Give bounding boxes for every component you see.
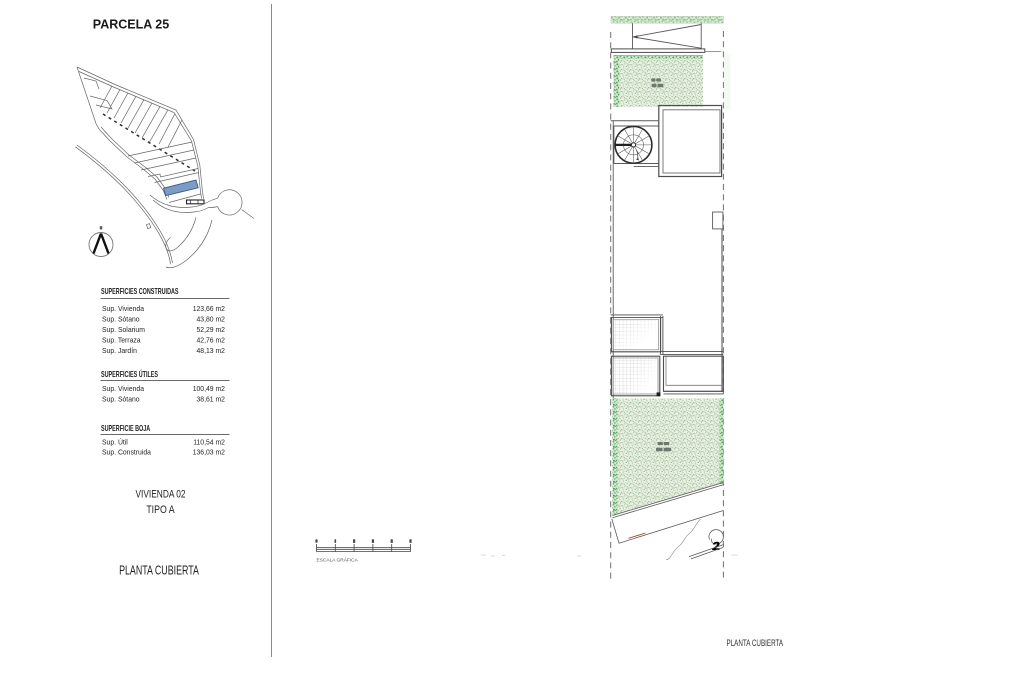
svg-text:SUPERFICIES CONSTRUIDAS: SUPERFICIES CONSTRUIDAS bbox=[101, 288, 179, 296]
svg-text:Sup. Terraza: Sup. Terraza bbox=[102, 335, 142, 344]
svg-text:PARCELA 25: PARCELA 25 bbox=[93, 18, 169, 32]
svg-text:Sup. Vivienda: Sup. Vivienda bbox=[102, 304, 145, 313]
svg-text:Sup. Vivienda: Sup. Vivienda bbox=[102, 384, 145, 393]
svg-text:52,29 m2: 52,29 m2 bbox=[197, 325, 225, 334]
svg-text:PLANTA CUBIERTA: PLANTA CUBIERTA bbox=[119, 564, 199, 578]
svg-text:48,13 m2: 48,13 m2 bbox=[197, 346, 225, 355]
svg-text:ESCALA GRÁFICA: ESCALA GRÁFICA bbox=[317, 557, 359, 564]
svg-text:SUPERFICIES ÚTILES: SUPERFICIES ÚTILES bbox=[101, 369, 158, 380]
svg-text:100,49 m2: 100,49 m2 bbox=[193, 384, 225, 393]
svg-text:Sup. Útil: Sup. Útil bbox=[102, 437, 128, 446]
svg-text:Sup. Sótano: Sup. Sótano bbox=[102, 394, 140, 403]
svg-text:123,66 m2: 123,66 m2 bbox=[193, 304, 225, 313]
svg-text:VIVIENDA 02: VIVIENDA 02 bbox=[135, 488, 185, 500]
svg-text:Sup. Construida: Sup. Construida bbox=[102, 447, 152, 456]
svg-text:PLANTA CUBIERTA: PLANTA CUBIERTA bbox=[726, 638, 783, 648]
svg-text:43,80 m2: 43,80 m2 bbox=[197, 314, 225, 323]
svg-text:Sup. Sótano: Sup. Sótano bbox=[102, 314, 140, 323]
svg-text:Sup. Solarium: Sup. Solarium bbox=[102, 325, 145, 334]
svg-text:TIPO A: TIPO A bbox=[146, 504, 175, 516]
svg-text:136,03 m2: 136,03 m2 bbox=[193, 447, 225, 456]
svg-text:38,61 m2: 38,61 m2 bbox=[197, 394, 225, 403]
svg-text:110,54 m2: 110,54 m2 bbox=[193, 437, 225, 446]
svg-text:Sup. Jardín: Sup. Jardín bbox=[102, 346, 137, 355]
svg-text:SUPERFICIE BOJA: SUPERFICIE BOJA bbox=[101, 425, 150, 433]
svg-text:42,76 m2: 42,76 m2 bbox=[197, 335, 225, 344]
